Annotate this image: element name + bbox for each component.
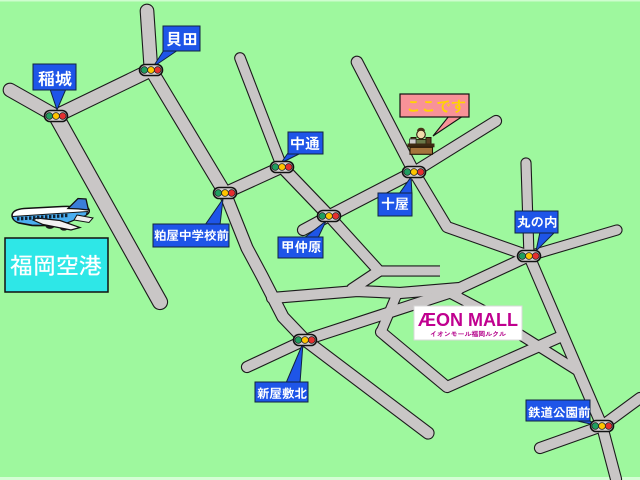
svg-text:ÆON MALL: ÆON MALL — [418, 310, 518, 330]
